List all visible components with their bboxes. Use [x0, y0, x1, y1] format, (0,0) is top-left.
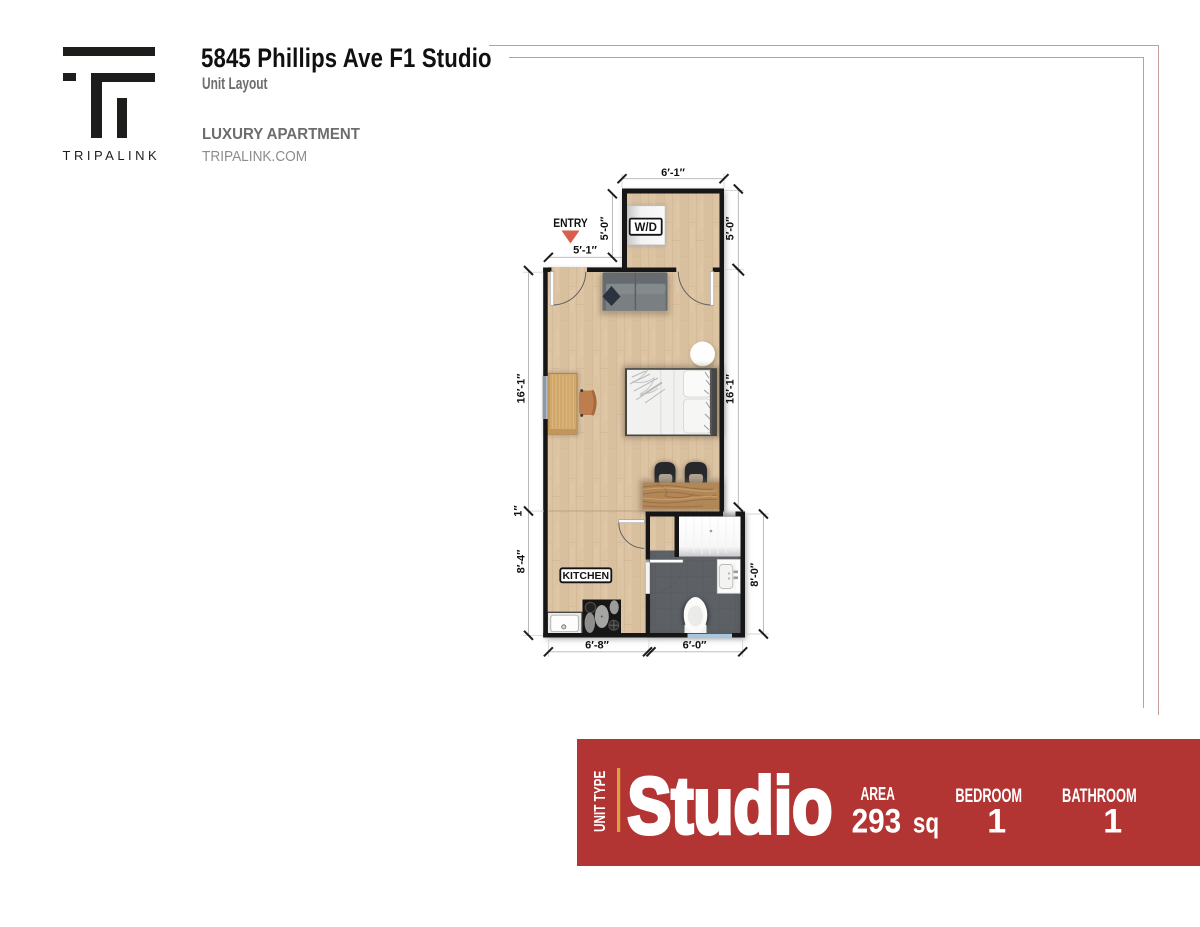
- svg-text:5′-1″: 5′-1″: [573, 245, 598, 257]
- svg-text:16′-1″: 16′-1″: [725, 373, 737, 404]
- svg-text:6′-0″: 6′-0″: [683, 639, 708, 651]
- svg-text:BATHROOM: BATHROOM: [1062, 786, 1137, 807]
- svg-text:6′-1″: 6′-1″: [661, 167, 686, 179]
- svg-text:8′-4″: 8′-4″: [516, 549, 528, 574]
- svg-text:ENTRY: ENTRY: [553, 218, 588, 230]
- svg-text:16′-1″: 16′-1″: [516, 373, 528, 404]
- svg-text:KITCHEN: KITCHEN: [562, 570, 609, 582]
- svg-text:8′-0″: 8′-0″: [749, 562, 761, 587]
- svg-text:1″: 1″: [513, 505, 525, 517]
- svg-text:5′-0″: 5′-0″: [725, 216, 737, 241]
- svg-text:1: 1: [987, 802, 1006, 840]
- svg-text:UNIT TYPE: UNIT TYPE: [592, 771, 609, 832]
- svg-text:293: 293: [851, 802, 901, 840]
- svg-text:5′-0″: 5′-0″: [599, 216, 611, 241]
- svg-text:Studio: Studio: [627, 761, 832, 850]
- svg-text:AREA: AREA: [860, 783, 895, 804]
- svg-text:sq: sq: [912, 807, 938, 839]
- svg-text:6′-8″: 6′-8″: [585, 639, 610, 651]
- svg-text:W/D: W/D: [635, 222, 657, 234]
- svg-text:1: 1: [1103, 802, 1122, 840]
